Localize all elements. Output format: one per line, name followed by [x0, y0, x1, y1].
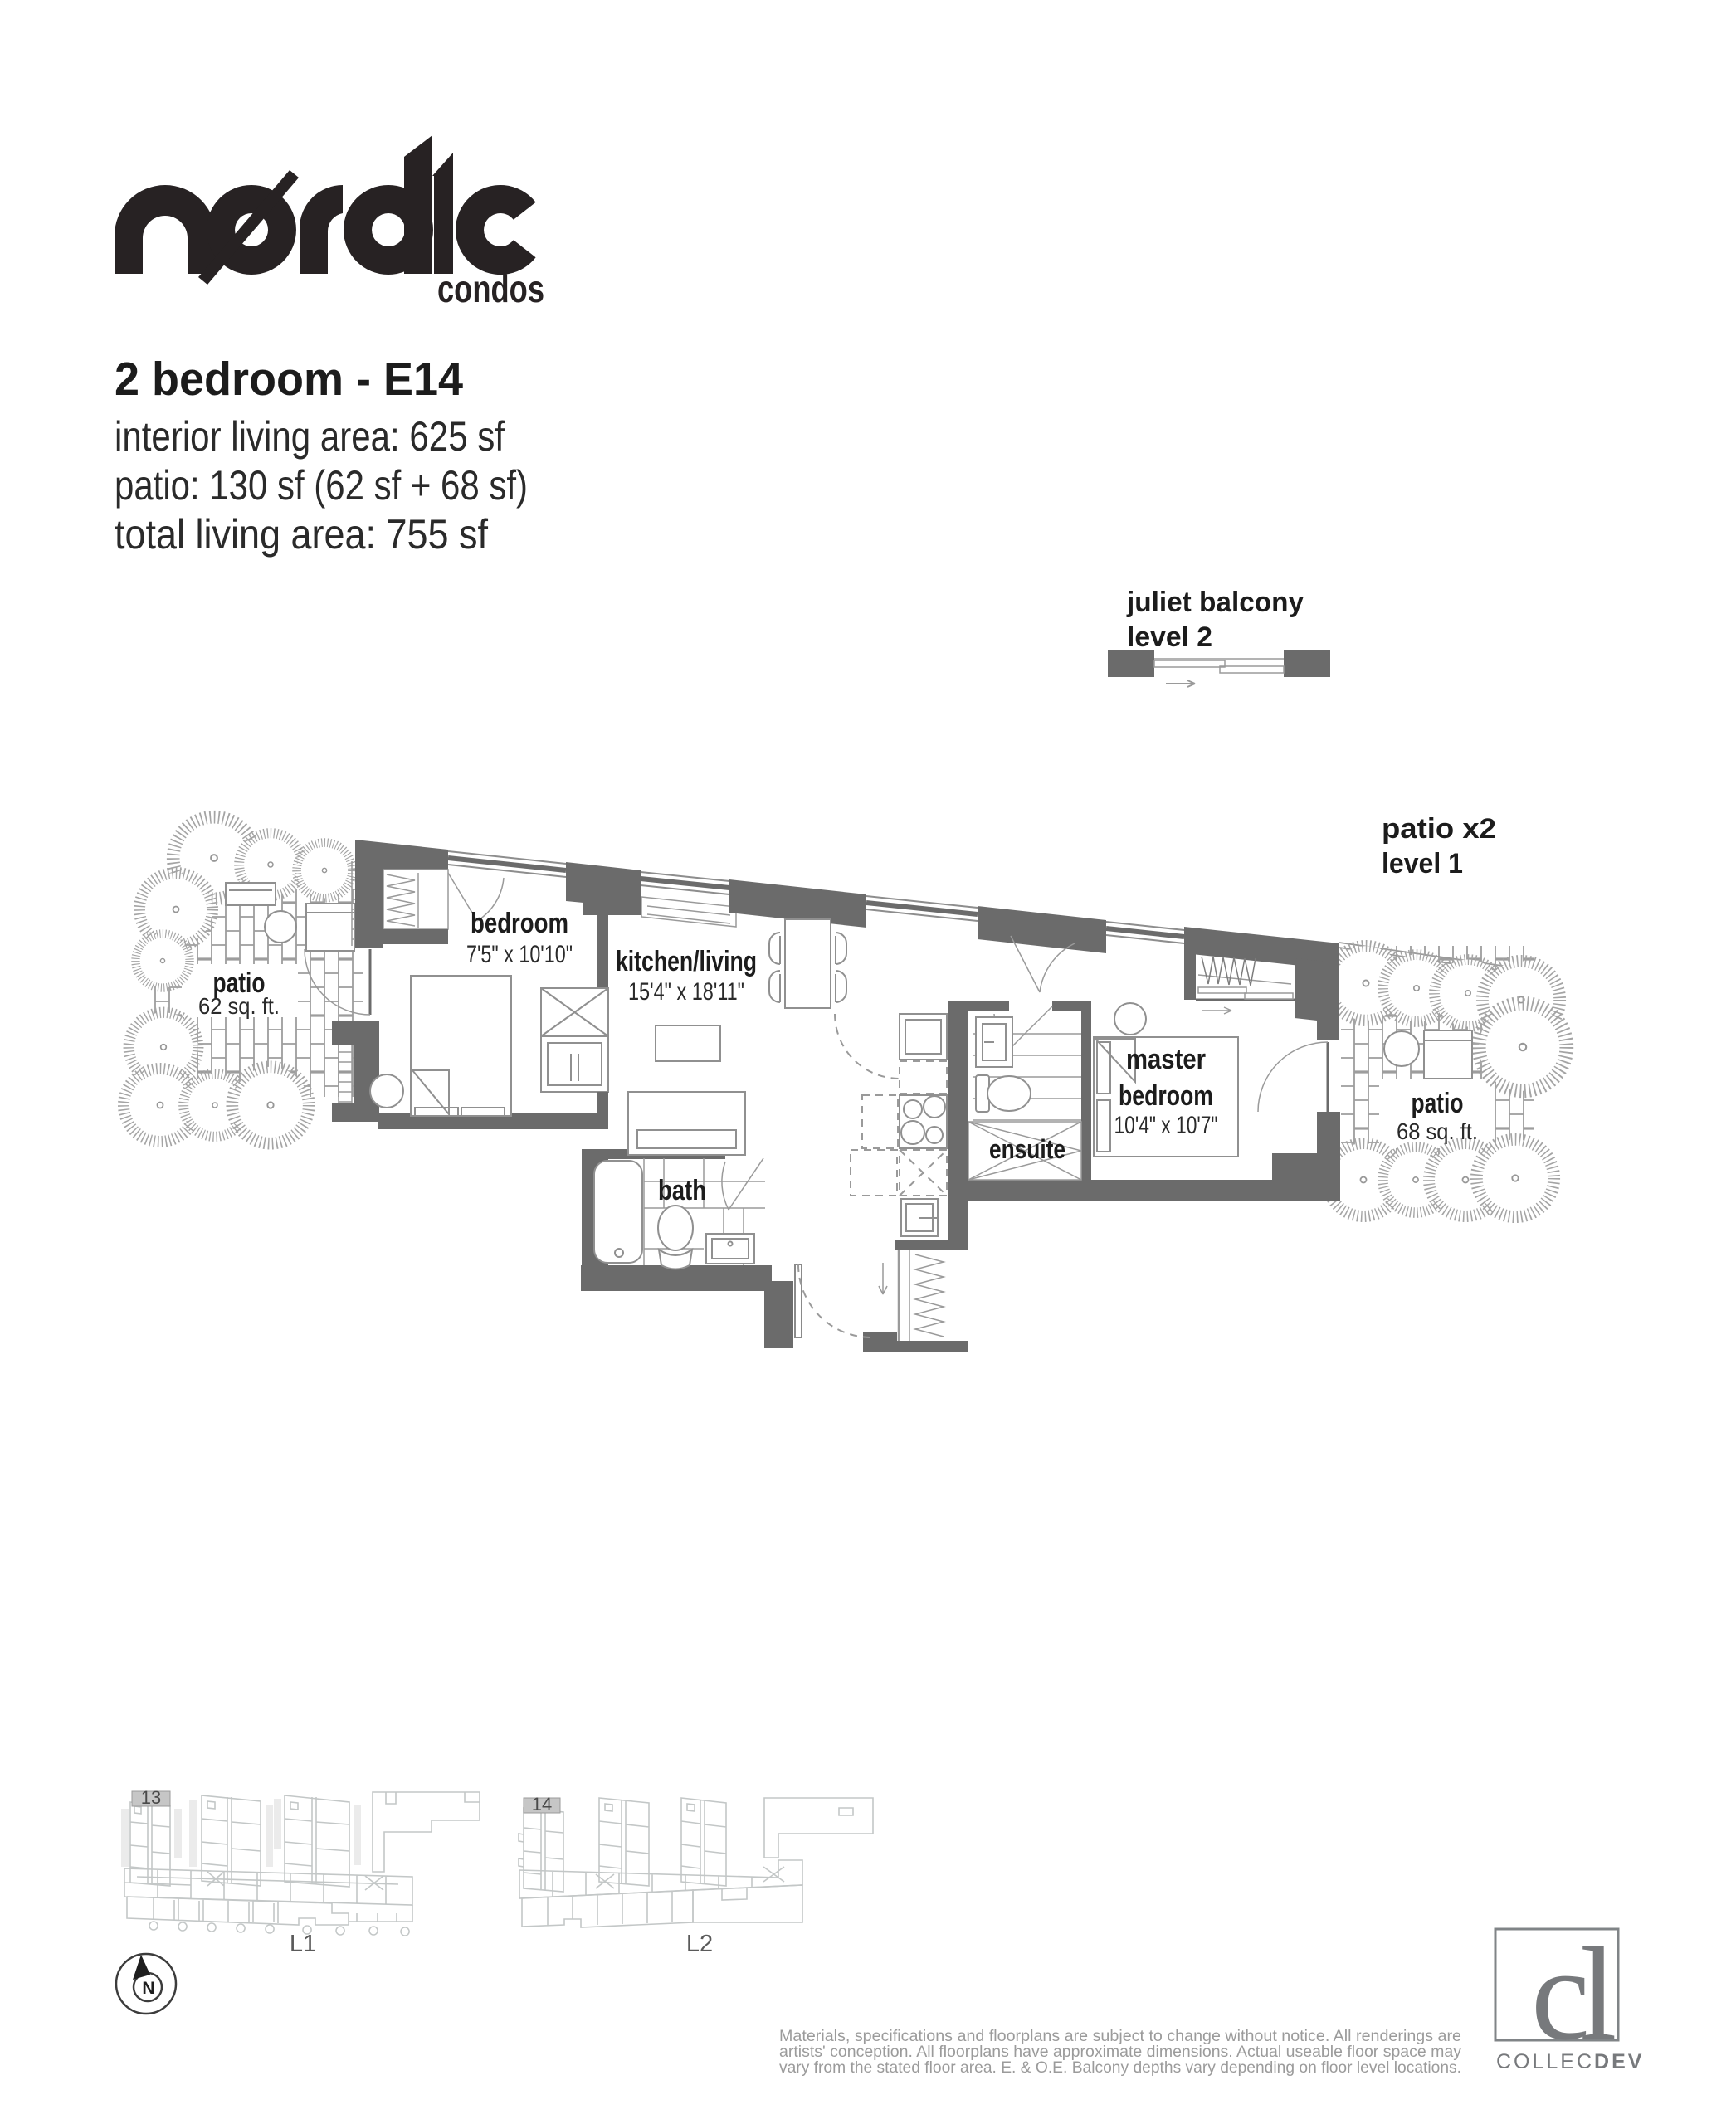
svg-text:2 bedroom - E14: 2 bedroom - E14 — [115, 353, 463, 406]
svg-text:master: master — [1126, 1044, 1206, 1075]
svg-text:COLLECDEV: COLLECDEV — [1496, 2050, 1644, 2073]
svg-text:62 sq. ft.: 62 sq. ft. — [198, 993, 280, 1019]
svg-text:cl: cl — [1531, 1920, 1615, 2068]
svg-text:15'4" x 18'11": 15'4" x 18'11" — [628, 978, 744, 1006]
svg-text:N: N — [142, 1979, 154, 1998]
svg-text:68 sq. ft.: 68 sq. ft. — [1397, 1118, 1478, 1144]
svg-text:interior living area: 625 sf: interior living area: 625 sf — [115, 413, 505, 460]
svg-text:kitchen/living: kitchen/living — [616, 946, 757, 977]
svg-text:L2: L2 — [686, 1931, 713, 1957]
svg-text:vary from the stated floor are: vary from the stated floor area. E. & O.… — [779, 2058, 1461, 2077]
svg-text:condos: condos — [437, 267, 544, 310]
svg-text:14: 14 — [532, 1794, 552, 1815]
svg-text:total living area: 755 sf: total living area: 755 sf — [115, 511, 488, 558]
svg-text:bath: bath — [658, 1175, 706, 1206]
svg-text:ensuite: ensuite — [989, 1134, 1065, 1164]
svg-text:juliet balcony: juliet balcony — [1126, 587, 1304, 618]
svg-text:patio: 130 sf (62 sf + 68 sf): patio: 130 sf (62 sf + 68 sf) — [115, 462, 528, 509]
svg-text:10'4" x 10'7": 10'4" x 10'7" — [1114, 1112, 1218, 1139]
svg-text:level 1: level 1 — [1382, 848, 1463, 879]
svg-text:bedroom: bedroom — [471, 908, 568, 939]
svg-text:L1: L1 — [290, 1931, 316, 1957]
svg-text:level 2: level 2 — [1127, 621, 1212, 653]
svg-text:patio: patio — [1412, 1088, 1464, 1119]
svg-text:bedroom: bedroom — [1119, 1080, 1213, 1112]
svg-text:7'5" x 10'10": 7'5" x 10'10" — [466, 941, 573, 968]
svg-text:13: 13 — [141, 1787, 161, 1808]
svg-text:patio x2: patio x2 — [1382, 813, 1496, 845]
